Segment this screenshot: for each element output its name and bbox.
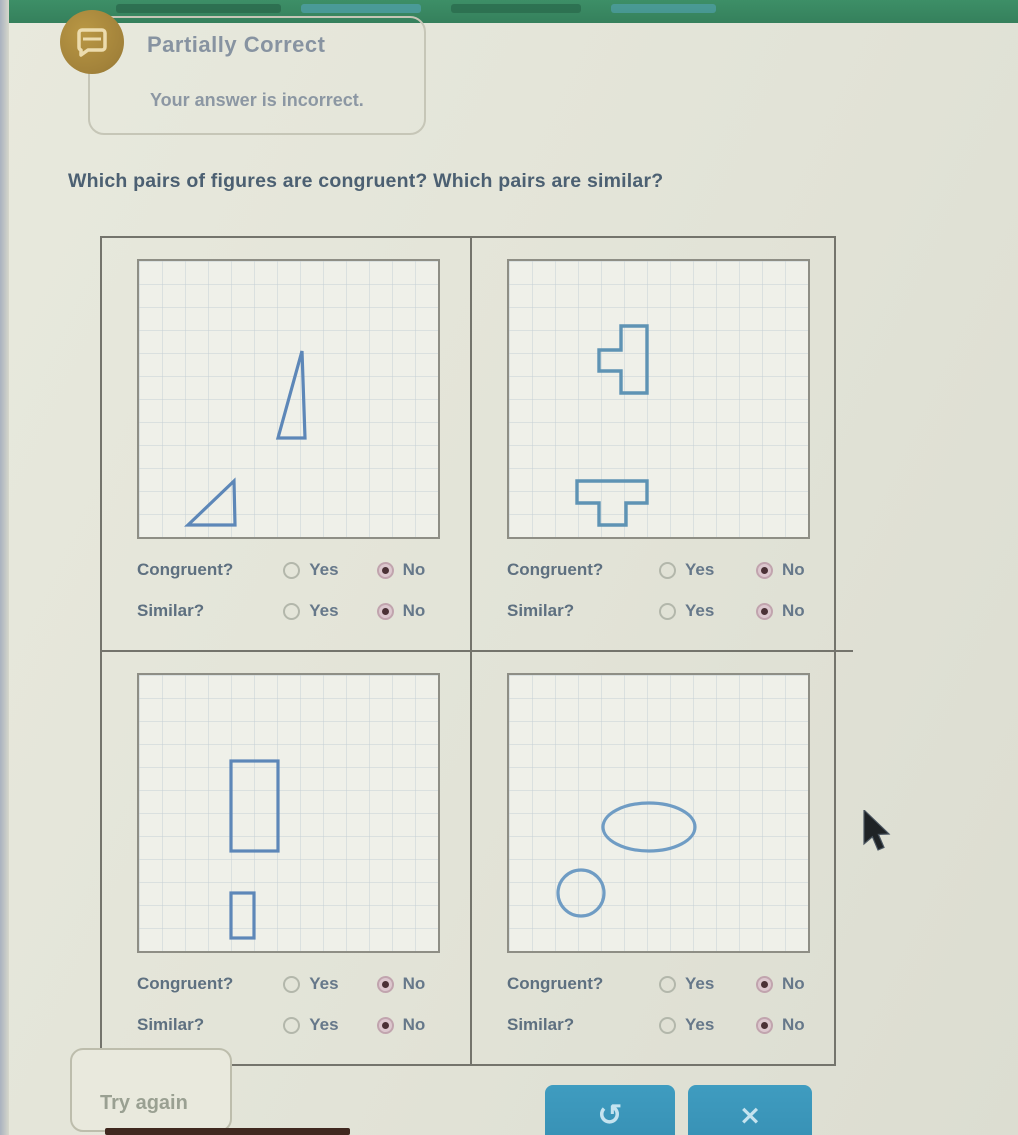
similar-label: Similar? xyxy=(137,601,283,621)
radio-no[interactable] xyxy=(377,976,394,993)
congruent-label: Congruent? xyxy=(137,560,283,580)
feedback-bubble: Partially Correct Your answer is incorre… xyxy=(88,16,426,135)
congruent-question-row: Congruent? Yes No xyxy=(507,973,853,995)
radio-no[interactable] xyxy=(756,1017,773,1034)
congruent-question-row: Congruent? Yes No xyxy=(507,559,853,581)
radio-yes[interactable] xyxy=(283,1017,300,1034)
no-label[interactable]: No xyxy=(782,1015,805,1035)
similar-yes-option[interactable]: Yes xyxy=(659,1015,756,1035)
congruent-no-option[interactable]: No xyxy=(377,560,470,580)
radio-no[interactable] xyxy=(377,603,394,620)
radio-yes[interactable] xyxy=(659,1017,676,1034)
no-label[interactable]: No xyxy=(403,601,426,621)
radio-no[interactable] xyxy=(756,976,773,993)
photo-artifact-strip xyxy=(105,1128,350,1135)
close-icon: × xyxy=(739,1100,762,1131)
congruent-label: Congruent? xyxy=(507,560,659,580)
similar-no-option[interactable]: No xyxy=(377,1015,470,1035)
yes-label[interactable]: Yes xyxy=(685,601,714,621)
radio-yes[interactable] xyxy=(283,562,300,579)
similar-label: Similar? xyxy=(507,1015,659,1035)
figure-grid-ellipses xyxy=(507,673,810,953)
similar-question-row: Similar? Yes No xyxy=(507,600,853,622)
yes-label[interactable]: Yes xyxy=(685,1015,714,1035)
congruent-no-option[interactable]: No xyxy=(377,974,470,994)
yes-label[interactable]: Yes xyxy=(309,974,338,994)
no-label[interactable]: No xyxy=(403,1015,426,1035)
congruent-yes-option[interactable]: Yes xyxy=(283,974,376,994)
congruent-no-option[interactable]: No xyxy=(756,974,853,994)
congruent-label: Congruent? xyxy=(507,974,659,994)
nav-blurred-text xyxy=(451,4,581,13)
no-label[interactable]: No xyxy=(782,560,805,580)
try-again-button[interactable]: Try again xyxy=(70,1048,232,1132)
panel-t-shapes: Congruent? Yes No Similar? Yes xyxy=(472,238,853,652)
mouse-cursor-icon xyxy=(862,810,896,854)
figure-grid-triangles xyxy=(137,259,440,539)
congruent-yes-option[interactable]: Yes xyxy=(659,560,756,580)
radio-yes[interactable] xyxy=(283,976,300,993)
similar-no-option[interactable]: No xyxy=(756,601,853,621)
radio-yes[interactable] xyxy=(659,562,676,579)
figure-grid-t-shapes xyxy=(507,259,810,539)
undo-button[interactable]: ↺ xyxy=(545,1085,675,1135)
yes-label[interactable]: Yes xyxy=(685,974,714,994)
radio-yes[interactable] xyxy=(659,976,676,993)
congruent-yes-option[interactable]: Yes xyxy=(659,974,756,994)
no-label[interactable]: No xyxy=(782,601,805,621)
feedback-message: Your answer is incorrect. xyxy=(150,90,364,111)
congruent-label: Congruent? xyxy=(137,974,283,994)
yes-label[interactable]: Yes xyxy=(309,1015,338,1035)
yes-label[interactable]: Yes xyxy=(309,601,338,621)
radio-no[interactable] xyxy=(756,603,773,620)
congruent-question-row: Congruent? Yes No xyxy=(137,973,470,995)
similar-question-row: Similar? Yes No xyxy=(137,1014,470,1036)
radio-yes[interactable] xyxy=(659,603,676,620)
close-button[interactable]: × xyxy=(688,1085,812,1135)
similar-question-row: Similar? Yes No xyxy=(507,1014,853,1036)
congruent-no-option[interactable]: No xyxy=(756,560,853,580)
answer-table: Congruent? Yes No Similar? Yes xyxy=(100,236,836,1066)
similar-yes-option[interactable]: Yes xyxy=(283,601,376,621)
similar-label: Similar? xyxy=(507,601,659,621)
radio-yes[interactable] xyxy=(283,603,300,620)
similar-label: Similar? xyxy=(137,1015,283,1035)
nav-blurred-text xyxy=(611,4,716,13)
similar-no-option[interactable]: No xyxy=(756,1015,853,1035)
no-label[interactable]: No xyxy=(403,974,426,994)
page-edge-shadow xyxy=(0,0,9,1135)
radio-no[interactable] xyxy=(377,1017,394,1034)
similar-yes-option[interactable]: Yes xyxy=(283,1015,376,1035)
undo-icon: ↺ xyxy=(597,1098,622,1133)
speech-bubble-icon xyxy=(75,26,109,58)
no-label[interactable]: No xyxy=(782,974,805,994)
radio-no[interactable] xyxy=(377,562,394,579)
partially-correct-badge xyxy=(60,10,124,74)
quiz-page: Partially Correct Your answer is incorre… xyxy=(0,0,1018,1135)
feedback-title: Partially Correct xyxy=(147,32,325,58)
yes-label[interactable]: Yes xyxy=(685,560,714,580)
panel-ellipses: Congruent? Yes No Similar? Yes xyxy=(472,652,853,1064)
yes-label[interactable]: Yes xyxy=(309,560,338,580)
figure-grid-rectangles xyxy=(137,673,440,953)
congruent-question-row: Congruent? Yes No xyxy=(137,559,470,581)
nav-blurred-text xyxy=(301,4,421,13)
question-text: Which pairs of figures are congruent? Wh… xyxy=(68,170,663,193)
similar-no-option[interactable]: No xyxy=(377,601,470,621)
radio-no[interactable] xyxy=(756,562,773,579)
congruent-yes-option[interactable]: Yes xyxy=(283,560,376,580)
nav-blurred-text xyxy=(116,4,281,13)
similar-yes-option[interactable]: Yes xyxy=(659,601,756,621)
panel-rectangles: Congruent? Yes No Similar? Yes xyxy=(102,652,472,1064)
no-label[interactable]: No xyxy=(403,560,426,580)
similar-question-row: Similar? Yes No xyxy=(137,600,470,622)
panel-triangles: Congruent? Yes No Similar? Yes xyxy=(102,238,472,652)
